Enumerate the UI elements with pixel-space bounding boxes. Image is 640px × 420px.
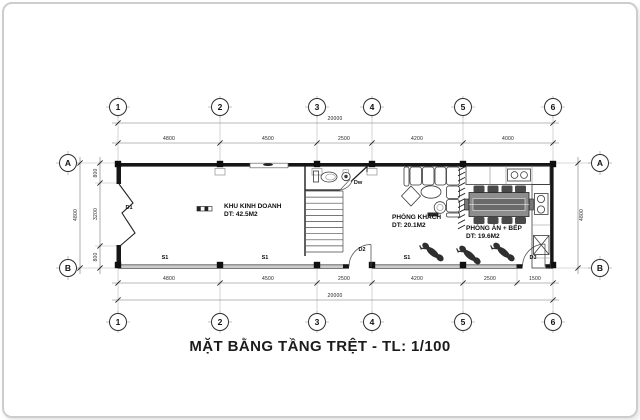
dim-bottom-bay2: 4500: [262, 276, 274, 282]
room-name: PHÒNG KHÁCH: [392, 214, 441, 222]
sofa-cushion: [447, 200, 460, 213]
grid-bubble-rowB-right: B: [591, 259, 609, 277]
sofa-cushion: [435, 167, 446, 185]
sofa-cushion: [423, 167, 435, 185]
label-door-d2: D2: [358, 247, 365, 253]
grid-bubble-col6-top: 6: [544, 98, 562, 116]
dining-set: [465, 186, 534, 225]
grid-bubble-col1-top: 1: [109, 98, 127, 116]
dim-bottom-bay5: 2500: [484, 276, 496, 282]
grid-bubble-col4-bottom: 4: [363, 313, 381, 331]
dim-left-seg1: 800: [93, 169, 99, 178]
motorbike: [489, 241, 515, 265]
living-room-furniture: [402, 167, 460, 217]
label-window-s1-c: S1: [404, 255, 411, 261]
grid-bubble-rowB-left: B: [59, 259, 77, 277]
toilet-tank: [314, 171, 319, 182]
sofa-corner: [447, 167, 460, 185]
folding-door-d1: [119, 184, 135, 246]
grid-bubble-rowA-left: A: [59, 154, 77, 172]
room-label-business: KHU KINH DOANH DT: 42.5M2: [224, 203, 281, 220]
label-door-d1: D1: [125, 205, 132, 211]
dim-bottom-bay4: 4200: [411, 276, 423, 282]
grid-bubble-col5-bottom: 5: [454, 313, 472, 331]
sofa-armrest: [447, 213, 460, 217]
label-window-s1-b: S1: [262, 255, 269, 261]
dim-left-seg3: 800: [93, 253, 99, 262]
dim-top-bay4: 4200: [411, 136, 423, 142]
coffee-table: [421, 186, 441, 198]
side-chair: [402, 186, 421, 206]
floor-plan-sheet: 1 2 3 4 5 6 1 2 3 4 5 6 A B A B 4800 450…: [0, 0, 640, 420]
grid-bubble-col3-bottom: 3: [308, 313, 326, 331]
room-label-dining-kitchen: PHÒNG ĂN + BẾP DT: 19.6M2: [466, 225, 522, 242]
grid-bubble-col2-bottom: 2: [211, 313, 229, 331]
label-door-dw: Dw: [354, 180, 362, 186]
wc-fixtures: [314, 170, 351, 182]
room-area: DT: 42.5M2: [224, 211, 281, 219]
room-area: DT: 20.1M2: [392, 222, 441, 230]
dim-top-bay2: 4500: [262, 136, 274, 142]
kitchen-sink: [535, 194, 549, 215]
dim-right-total: 4800: [579, 209, 585, 221]
dim-bottom-bay1: 4800: [163, 276, 175, 282]
grid-bubble-col6-bottom: 6: [544, 313, 562, 331]
grid-bubble-col2-top: 2: [211, 98, 229, 116]
dim-left-total: 4800: [73, 209, 79, 221]
room-label-living: PHÒNG KHÁCH DT: 20.1M2: [392, 214, 441, 231]
dim-bottom-bay3: 2500: [338, 276, 350, 282]
dim-left-seg2: 3200: [93, 208, 99, 220]
dim-top-bay5: 4000: [502, 136, 514, 142]
label-window-s1-a: S1: [162, 255, 169, 261]
dim-bottom-total: 20000: [328, 293, 343, 299]
room-area: DT: 19.6M2: [466, 233, 522, 241]
level-marker: [197, 207, 212, 212]
sofa-cushion: [410, 167, 422, 185]
drawing-title: MẶT BẰNG TẦNG TRỆT - TL: 1/100: [189, 338, 450, 355]
toilet-bowl: [321, 172, 337, 182]
label-door-d3: D3: [529, 255, 536, 261]
dim-top-bay3: 2500: [338, 136, 350, 142]
sofa-cushion: [447, 186, 460, 199]
room-name: KHU KINH DOANH: [224, 203, 281, 211]
grid-bubble-col1-bottom: 1: [109, 313, 127, 331]
dim-top-bay1: 4800: [163, 136, 175, 142]
grid-bubble-col4-top: 4: [363, 98, 381, 116]
room-name: PHÒNG ĂN + BẾP: [466, 225, 522, 233]
motorbike: [418, 241, 444, 265]
dim-top-total: 20000: [328, 116, 343, 122]
motorbikes: [418, 241, 515, 268]
sofa-armrest: [404, 167, 409, 186]
column-footings: [215, 169, 377, 176]
dim-bottom-bay6: 1500: [529, 276, 541, 282]
motorbike: [455, 244, 481, 268]
grid-bubble-col3-top: 3: [308, 98, 326, 116]
grid-bubble-rowA-right: A: [591, 154, 609, 172]
grid-bubble-col5-top: 5: [454, 98, 472, 116]
staircase: [306, 191, 343, 252]
